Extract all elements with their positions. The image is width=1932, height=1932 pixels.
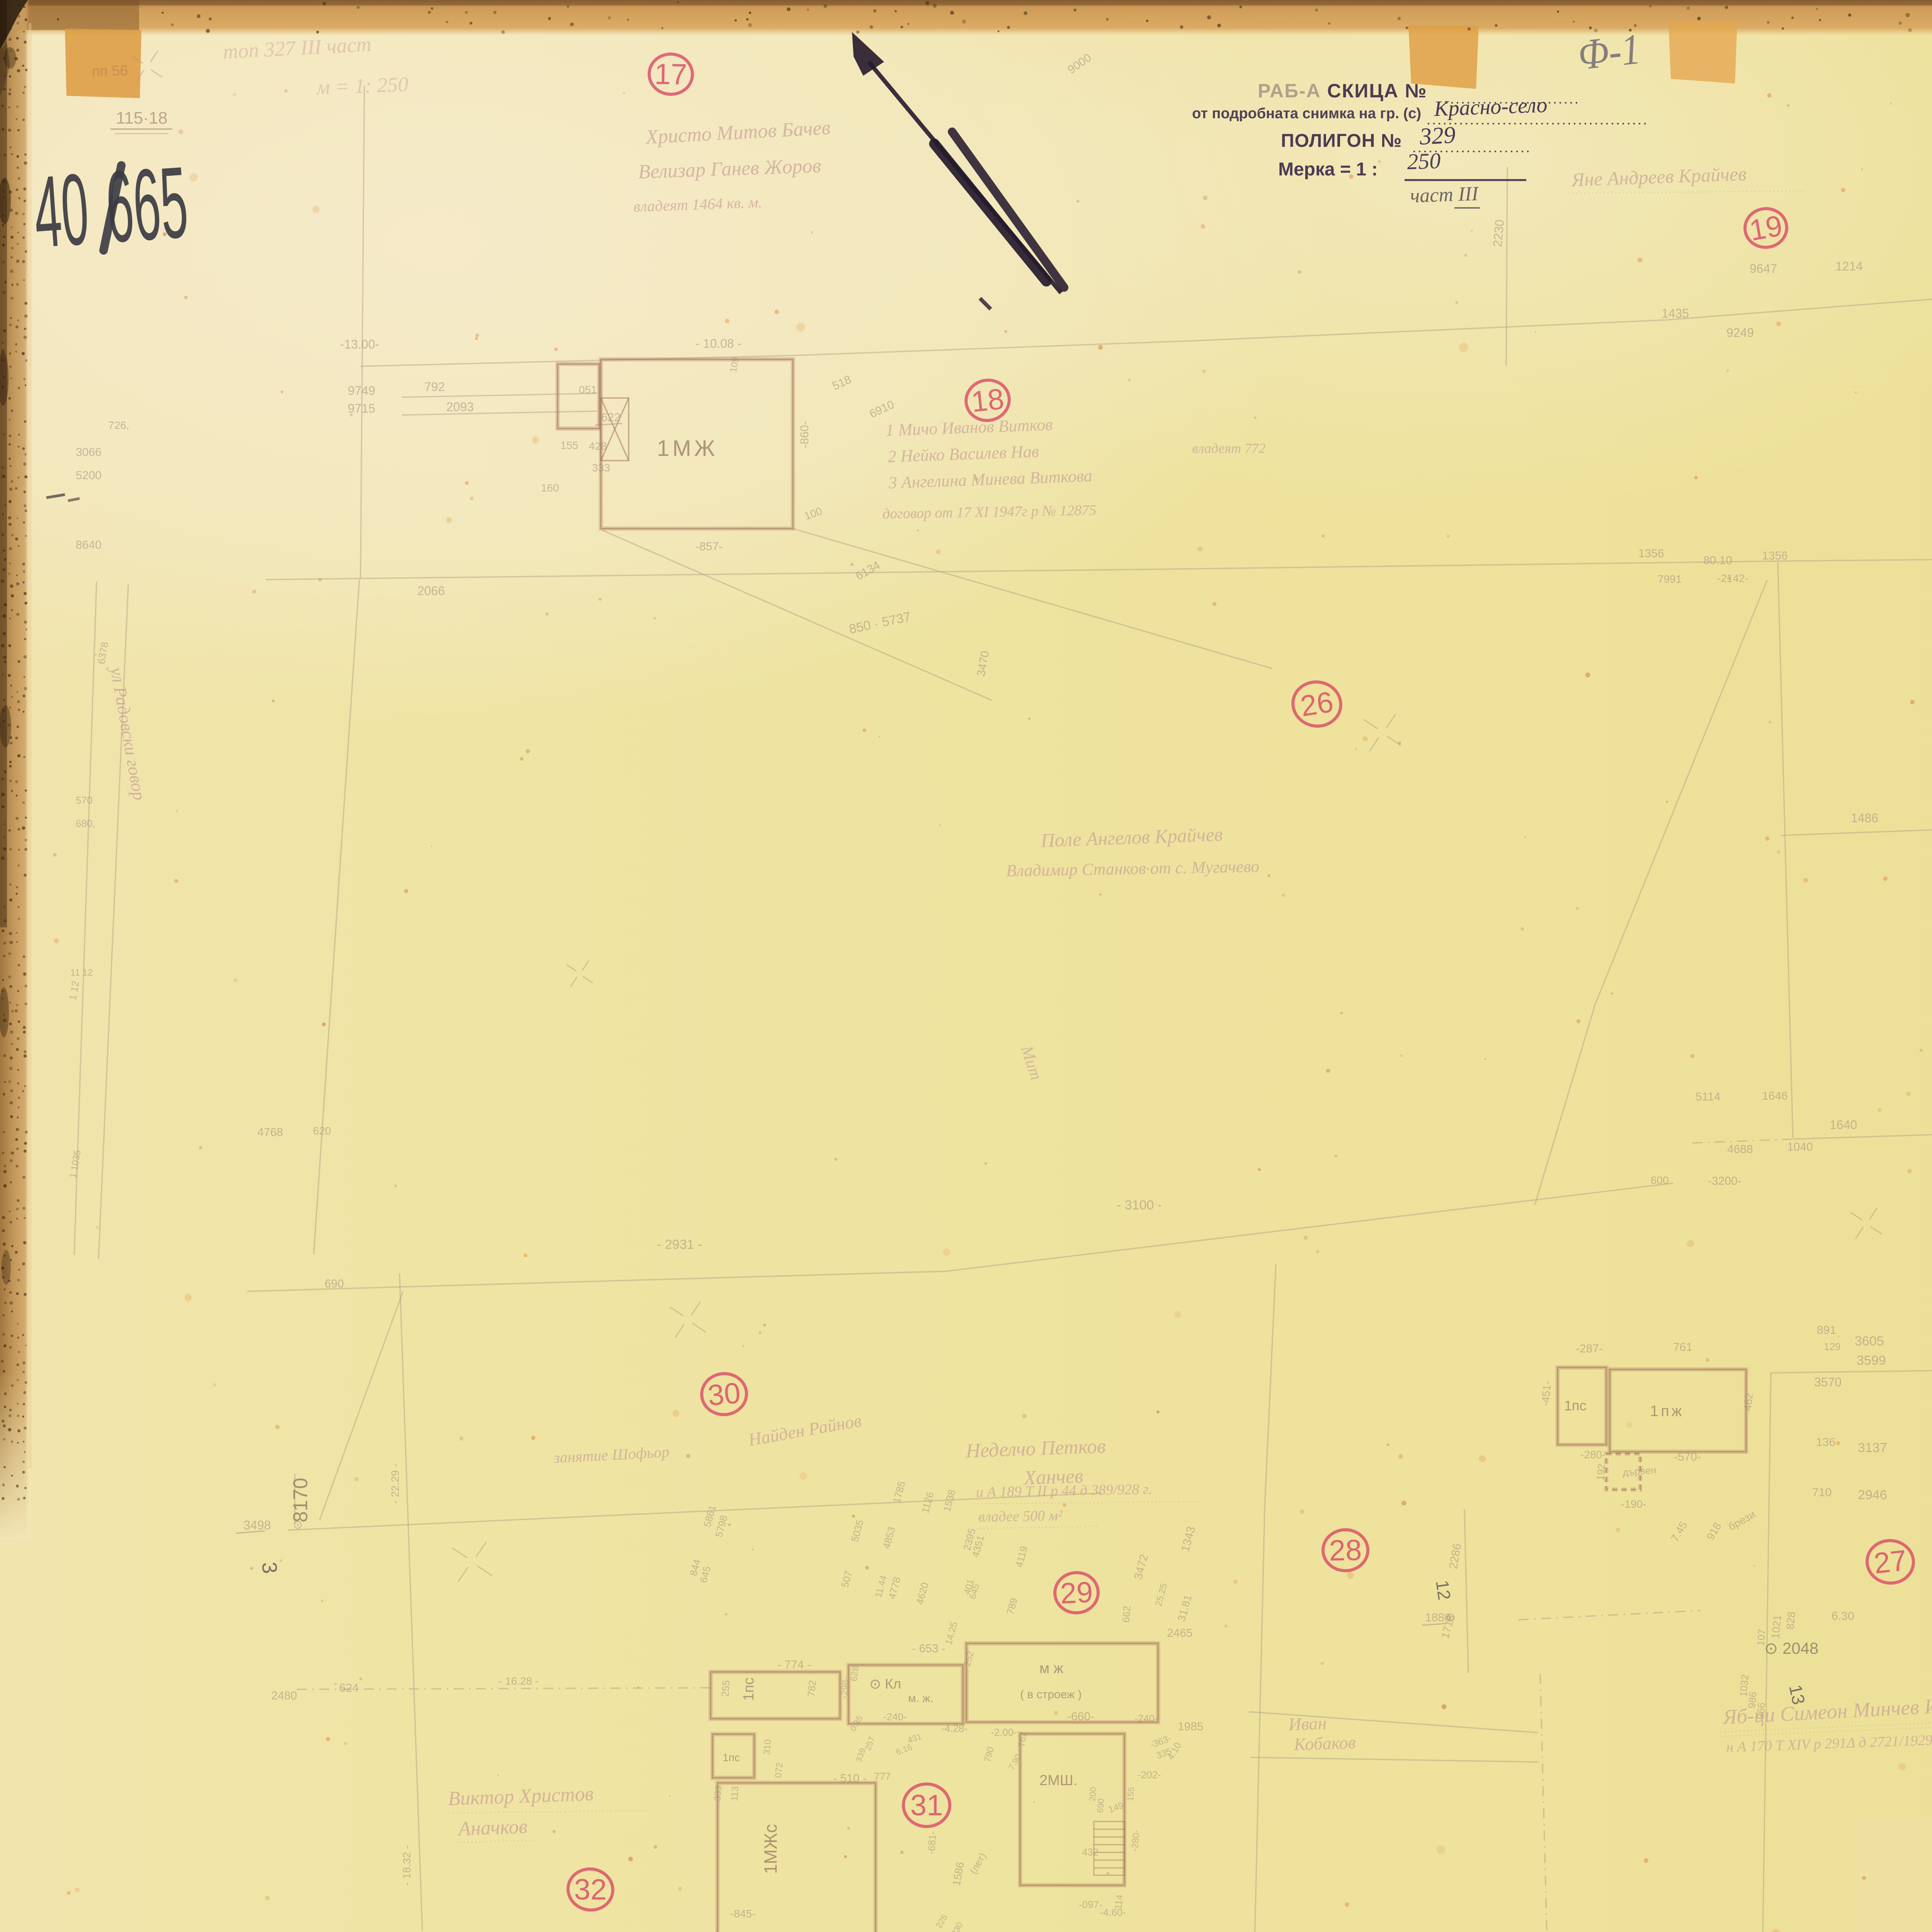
svg-text:-3200-: -3200- — [1708, 1175, 1742, 1187]
svg-text:2066: 2066 — [417, 584, 445, 598]
svg-text:( в строеж ): ( в строеж ) — [1020, 1688, 1082, 1701]
svg-text:570: 570 — [76, 794, 92, 806]
svg-text:624: 624 — [339, 1682, 359, 1694]
svg-text:9715: 9715 — [348, 401, 375, 415]
svg-text:428: 428 — [589, 440, 607, 452]
svg-text:710: 710 — [1812, 1486, 1832, 1499]
svg-text:3605: 3605 — [1855, 1334, 1884, 1349]
svg-text:⊙ 2048: ⊙ 2048 — [1764, 1639, 1818, 1657]
svg-text:1640: 1640 — [1830, 1118, 1857, 1132]
svg-text:777: 777 — [874, 1770, 891, 1782]
svg-text:- 18.32 -: - 18.32 - — [401, 1845, 413, 1886]
svg-text:432: 432 — [1082, 1846, 1099, 1858]
svg-text:9647: 9647 — [1750, 262, 1777, 276]
svg-text:7991: 7991 — [1658, 573, 1682, 585]
svg-text:-660-: -660- — [1067, 1710, 1094, 1723]
svg-text:762: 762 — [1017, 1731, 1028, 1747]
svg-text:1356: 1356 — [1762, 549, 1788, 562]
svg-text:-570-: -570- — [1674, 1451, 1701, 1463]
svg-text:-681-: -681- — [925, 1830, 939, 1855]
svg-text:-857-: -857- — [696, 540, 723, 553]
svg-text:- 3100 -: - 3100 - — [1117, 1198, 1162, 1213]
svg-text:12: 12 — [1432, 1579, 1455, 1601]
svg-text:1040: 1040 — [1787, 1141, 1813, 1153]
svg-text:Кобаков: Кобаков — [1293, 1732, 1356, 1754]
svg-text:3570: 3570 — [1814, 1375, 1842, 1389]
svg-text:966: 966 — [1754, 1702, 1767, 1720]
svg-text:3: 3 — [257, 1561, 281, 1575]
svg-text:1МЖ: 1МЖ — [657, 436, 718, 461]
svg-text:333: 333 — [592, 462, 610, 474]
svg-text:ПОЛИГОН №: ПОЛИГОН № — [1281, 131, 1402, 151]
svg-text:4768: 4768 — [257, 1126, 283, 1139]
svg-text:РАБ-А СКИЦА №: РАБ-А СКИЦА № — [1258, 80, 1427, 102]
svg-text:⊙ Кл: ⊙ Кл — [869, 1676, 901, 1692]
svg-text:1435: 1435 — [1662, 306, 1689, 320]
svg-text:3498: 3498 — [243, 1518, 271, 1532]
svg-text:662: 662 — [1120, 1605, 1133, 1623]
svg-text:40: 40 — [30, 152, 92, 269]
svg-text:761: 761 — [1673, 1341, 1692, 1354]
svg-text:155: 155 — [1125, 1787, 1136, 1802]
svg-text:-2142-: -2142- — [1717, 572, 1748, 584]
svg-text:329: 329 — [1418, 122, 1456, 150]
svg-text:-280-: -280- — [1129, 1829, 1142, 1852]
svg-text:м = 1: 250: м = 1: 250 — [315, 73, 408, 99]
svg-text:333: 333 — [712, 1785, 724, 1801]
svg-text:310: 310 — [762, 1739, 773, 1755]
svg-text:8640: 8640 — [76, 539, 102, 551]
svg-text:-287-: -287- — [1576, 1342, 1603, 1355]
svg-text:782: 782 — [805, 1680, 818, 1697]
svg-text:622: 622 — [601, 411, 621, 424]
svg-text:160: 160 — [541, 482, 559, 494]
svg-text:-451-: -451- — [1539, 1381, 1553, 1407]
svg-text:1021: 1021 — [1769, 1614, 1783, 1639]
svg-text:3066: 3066 — [76, 446, 102, 459]
svg-text:2480: 2480 — [271, 1689, 297, 1702]
svg-text:32: 32 — [574, 1873, 607, 1906]
svg-text:690: 690 — [1095, 1798, 1106, 1813]
svg-text:600: 600 — [1651, 1174, 1669, 1186]
svg-text:891: 891 — [1817, 1324, 1836, 1337]
svg-text:Аначков: Аначков — [457, 1816, 527, 1840]
svg-text:5114: 5114 — [1696, 1090, 1721, 1103]
svg-text:27: 27 — [1872, 1544, 1908, 1580]
svg-text:26: 26 — [1298, 685, 1336, 723]
svg-text:и А 189 Т II р 44 д 389/928 г: и А 189 Т II р 44 д 389/928 г. — [976, 1481, 1152, 1500]
svg-text:18: 18 — [970, 383, 1006, 418]
svg-text:31: 31 — [910, 1789, 943, 1822]
svg-text:30: 30 — [706, 1376, 742, 1412]
svg-text:-860-: -860- — [798, 421, 811, 448]
svg-text:1486: 1486 — [1851, 811, 1878, 825]
svg-text:2093: 2093 — [446, 400, 474, 414]
svg-text:255: 255 — [719, 1680, 732, 1697]
svg-text:680,: 680, — [76, 818, 95, 829]
svg-text:792: 792 — [424, 380, 445, 394]
svg-text:114: 114 — [1113, 1894, 1125, 1910]
svg-text:-097-: -097- — [1079, 1899, 1102, 1910]
svg-text:- 2931 -: - 2931 - — [657, 1237, 702, 1252]
svg-text:11 12: 11 12 — [70, 968, 93, 978]
svg-text:1пс: 1пс — [723, 1752, 740, 1764]
svg-text:1пс: 1пс — [1564, 1398, 1587, 1413]
svg-text:от подробната снимка на гр. (с: от подробната снимка на гр. (с) — [1192, 105, 1421, 122]
svg-text:Иван: Иван — [1288, 1713, 1327, 1734]
svg-text:3599: 3599 — [1857, 1353, 1886, 1368]
svg-text:628: 628 — [849, 1665, 861, 1682]
svg-text:6.30: 6.30 — [1832, 1610, 1854, 1622]
svg-text:-4.28-: -4.28- — [941, 1723, 968, 1734]
svg-text:Красно-село: Красно-село — [1433, 93, 1548, 121]
svg-text:28: 28 — [1329, 1534, 1362, 1567]
svg-text:-240-: -240- — [1134, 1713, 1158, 1724]
svg-text:690: 690 — [325, 1277, 344, 1290]
svg-text:1646: 1646 — [1762, 1090, 1788, 1102]
svg-text:1985: 1985 — [1178, 1720, 1204, 1733]
svg-text:4688: 4688 — [1727, 1143, 1753, 1156]
svg-text:828: 828 — [1784, 1611, 1798, 1630]
svg-text:5200: 5200 — [76, 469, 102, 482]
svg-text:част III: част III — [1410, 183, 1480, 207]
svg-text:051: 051 — [579, 384, 597, 396]
svg-text:владее 500 м²: владее 500 м² — [978, 1507, 1063, 1525]
svg-text:1пс: 1пс — [741, 1677, 757, 1701]
svg-text:13: 13 — [1785, 1683, 1809, 1706]
svg-text:1МЖс: 1МЖс — [760, 1824, 781, 1874]
svg-text:250: 250 — [1406, 148, 1441, 174]
svg-text:2230: 2230 — [1490, 219, 1507, 248]
svg-text:129: 129 — [1824, 1341, 1840, 1352]
svg-text:136: 136 — [1816, 1436, 1835, 1449]
svg-text:1пж: 1пж — [1650, 1403, 1684, 1420]
svg-text:2465: 2465 — [1167, 1627, 1193, 1639]
svg-text:80.10: 80.10 — [1703, 554, 1732, 567]
svg-text:- 653 -: - 653 - — [912, 1642, 946, 1655]
svg-text:155: 155 — [560, 439, 578, 451]
svg-text:1214: 1214 — [1835, 259, 1863, 273]
svg-text:пп 56: пп 56 — [92, 63, 128, 80]
svg-text:462: 462 — [1742, 1392, 1755, 1411]
svg-text:9249: 9249 — [1726, 326, 1754, 340]
svg-text:м ж: м ж — [1039, 1660, 1064, 1677]
svg-text:19: 19 — [1747, 209, 1785, 247]
svg-text:- 10.08 -: - 10.08 - — [696, 337, 742, 350]
svg-text:17: 17 — [654, 58, 687, 91]
svg-text:-13.00-: -13.00- — [340, 337, 379, 351]
svg-text:-202-: -202- — [1138, 1769, 1161, 1781]
svg-text:-845-: -845- — [730, 1908, 755, 1920]
svg-text:29: 29 — [1060, 1576, 1094, 1610]
svg-text:113: 113 — [729, 1786, 741, 1801]
svg-text:Мерка = 1 :: Мерка = 1 : — [1278, 159, 1378, 180]
svg-text:072: 072 — [773, 1762, 785, 1778]
svg-text:2МШ.: 2МШ. — [1039, 1772, 1077, 1789]
svg-text:115·18: 115·18 — [116, 109, 168, 128]
svg-text:Ф-1: Ф-1 — [1576, 25, 1643, 79]
svg-text:владеят 772: владеят 772 — [1192, 440, 1265, 456]
svg-text:192: 192 — [1594, 1463, 1607, 1481]
svg-text:- 22.29 -: - 22.29 - — [389, 1464, 401, 1504]
svg-text:- 510 -: - 510 - — [833, 1772, 867, 1785]
svg-text:1356: 1356 — [1638, 547, 1664, 560]
svg-text:-190-: -190- — [1621, 1498, 1646, 1510]
svg-text:-240-: -240- — [883, 1711, 907, 1723]
svg-text:8170: 8170 — [289, 1478, 312, 1522]
svg-text:726,: 726, — [108, 419, 129, 431]
svg-text:- 16.28 -: - 16.28 - — [498, 1675, 539, 1687]
svg-text:9749: 9749 — [348, 384, 375, 398]
svg-text:-2.00-: -2.00- — [991, 1726, 1017, 1738]
svg-text:- 774 -: - 774 - — [777, 1658, 811, 1671]
svg-text:-280-: -280- — [1580, 1449, 1605, 1461]
svg-text:2946: 2946 — [1858, 1488, 1887, 1502]
svg-text:3137: 3137 — [1858, 1440, 1887, 1455]
svg-text:620: 620 — [313, 1125, 331, 1137]
svg-text:м. ж.: м. ж. — [908, 1692, 934, 1705]
